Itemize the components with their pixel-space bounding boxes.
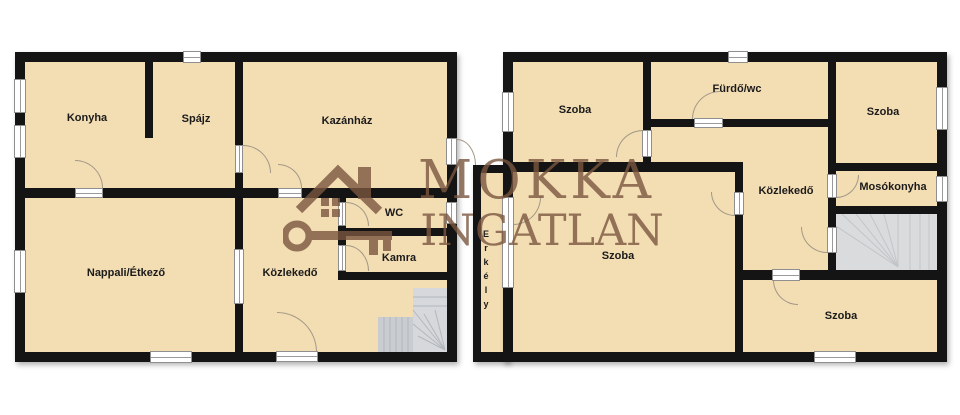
- room-label-mosokonyha: Mosókonyha: [859, 181, 926, 193]
- window: [728, 51, 748, 63]
- room-label-kozlekedo-left: Közlekedő: [262, 267, 317, 279]
- window: [14, 125, 26, 158]
- wall: [651, 119, 836, 127]
- wall: [145, 62, 153, 138]
- window: [150, 351, 192, 363]
- room-label-nappali: Nappali/Étkező: [87, 267, 165, 279]
- room-label-kozlekedo-right: Közlekedő: [758, 185, 813, 197]
- door: [827, 227, 837, 253]
- door: [734, 192, 744, 215]
- door: [772, 269, 800, 281]
- door: [827, 174, 837, 198]
- window: [814, 351, 856, 363]
- wall: [836, 163, 947, 171]
- floorplan-canvas: Konyha Spájz Kazánház Nappali/Étkező Köz…: [0, 0, 960, 415]
- room-label-szoba-topleft: Szoba: [559, 104, 591, 116]
- room-label-spajz: Spájz: [182, 113, 211, 125]
- wall: [836, 206, 947, 214]
- window: [936, 176, 948, 202]
- window: [446, 202, 457, 224]
- wall: [338, 272, 447, 280]
- window: [14, 250, 26, 293]
- balcony-door: [502, 197, 514, 288]
- room-label-erkely: Erkély: [481, 229, 491, 313]
- wall: [513, 162, 743, 172]
- wall: [235, 62, 243, 352]
- door: [446, 138, 457, 165]
- window: [183, 51, 201, 63]
- door: [75, 188, 103, 198]
- door: [338, 245, 346, 271]
- room-label-szoba-topright: Szoba: [867, 106, 899, 118]
- door: [278, 188, 302, 198]
- room-label-kamra: Kamra: [382, 252, 416, 264]
- door: [235, 145, 243, 173]
- window: [502, 92, 514, 132]
- door: [338, 202, 346, 226]
- room-label-szoba-big: Szoba: [602, 250, 634, 262]
- room-label-konyha: Konyha: [67, 112, 107, 124]
- door: [694, 118, 723, 128]
- room-label-wc: WC: [385, 207, 403, 219]
- wall: [338, 228, 447, 236]
- wall: [735, 270, 947, 280]
- door: [276, 351, 318, 362]
- room-label-furdo-wc: Fürdő/wc: [713, 83, 762, 95]
- double-door: [234, 249, 244, 304]
- stairs: [836, 214, 937, 270]
- door: [642, 130, 652, 157]
- window: [936, 87, 948, 130]
- stairs: [378, 288, 447, 352]
- room-label-szoba-bottomright: Szoba: [825, 310, 857, 322]
- room-label-kazanhaz: Kazánház: [322, 115, 373, 127]
- door-swing-arc: [457, 139, 476, 165]
- window: [14, 79, 26, 113]
